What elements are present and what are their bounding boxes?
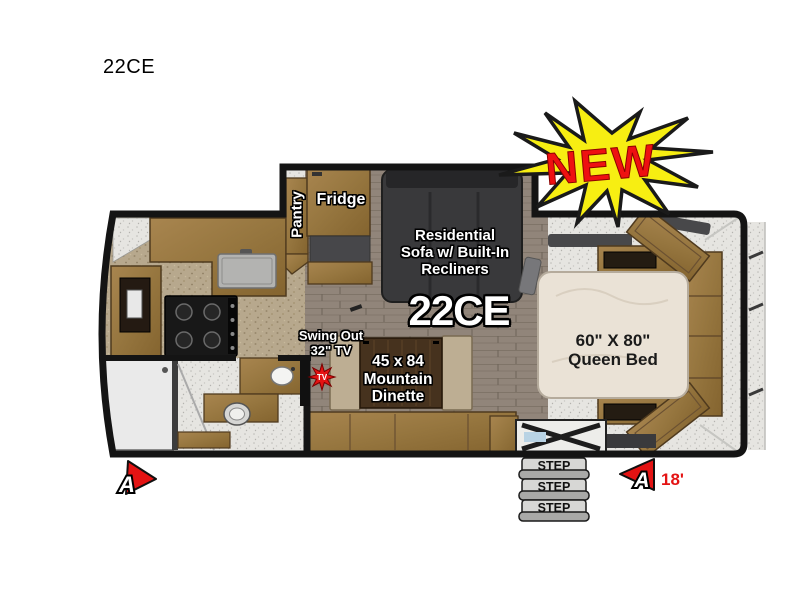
step-label: STEP	[538, 459, 571, 473]
tv-badge: TV	[309, 364, 335, 390]
marker-letter: A	[633, 469, 649, 492]
pantry-cabinet	[286, 178, 308, 274]
queen-bed	[538, 272, 688, 398]
fridge	[307, 168, 372, 284]
marker-a-right: A A 18'	[620, 459, 684, 492]
entry-steps: STEP STEP STEP	[519, 458, 589, 521]
camper-body	[88, 160, 744, 460]
page-title: 22CE	[103, 56, 155, 79]
stove	[165, 296, 237, 356]
marker-a-left: A A	[118, 461, 156, 497]
oven-cabinet	[111, 266, 161, 358]
exterior-trim	[748, 222, 765, 450]
step-label: STEP	[538, 480, 571, 494]
sofa	[382, 170, 542, 302]
step-3: STEP	[519, 500, 589, 521]
bathroom-vanity	[240, 358, 306, 394]
dinette	[330, 336, 472, 410]
new-badge-label: NEW	[543, 134, 658, 194]
kitchen-sink	[218, 249, 276, 288]
floorplan-graphic: STEP STEP STEP A A A A 18' TV NEW	[0, 0, 800, 600]
length-label: 18'	[661, 470, 684, 489]
bench-seat	[306, 412, 516, 452]
tv-badge-label: TV	[317, 373, 328, 382]
marker-letter: A	[118, 472, 135, 497]
floorplan-image: STEP STEP STEP A A A A 18' TV NEW 22CE	[0, 0, 800, 600]
step-1: STEP	[519, 458, 589, 479]
step-label: STEP	[538, 501, 571, 515]
step-2: STEP	[519, 479, 589, 500]
